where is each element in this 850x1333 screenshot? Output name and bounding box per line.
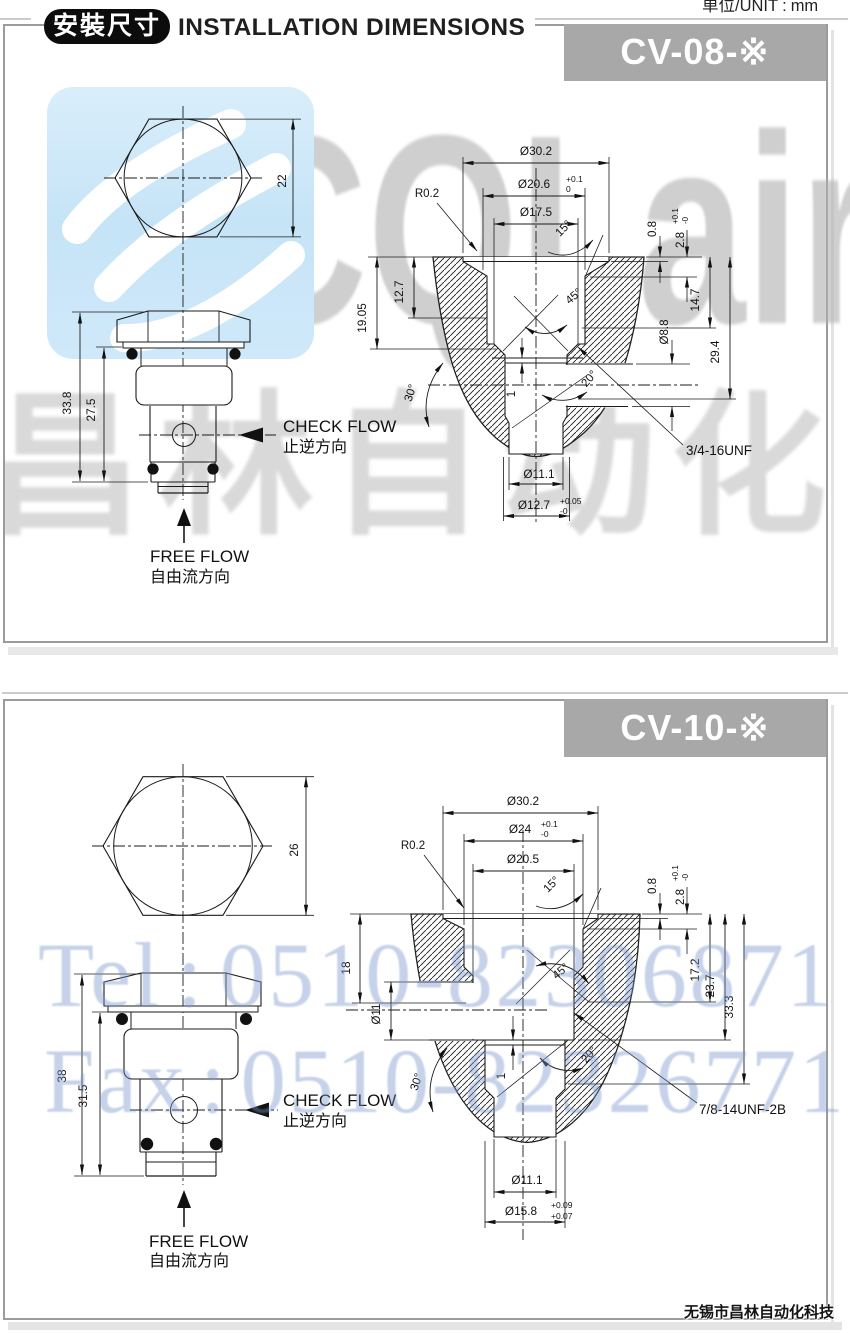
- svg-text:2.8: 2.8: [675, 889, 687, 905]
- svg-text:Ø20.6: Ø20.6: [518, 177, 551, 191]
- svg-text:26: 26: [287, 843, 301, 857]
- svg-text:自由流方向: 自由流方向: [149, 1252, 229, 1270]
- svg-text:29.4: 29.4: [708, 340, 722, 363]
- svg-text:CHECK FLOW: CHECK FLOW: [283, 417, 396, 436]
- svg-text:22: 22: [275, 174, 289, 187]
- svg-text:12.7: 12.7: [392, 281, 406, 304]
- svg-text:27.5: 27.5: [84, 398, 98, 421]
- svg-text:+0.1: +0.1: [671, 865, 680, 881]
- svg-text:0.8: 0.8: [647, 221, 659, 237]
- svg-text:1: 1: [506, 391, 518, 397]
- svg-text:0.8: 0.8: [647, 878, 659, 894]
- svg-text:2.8: 2.8: [675, 232, 687, 248]
- svg-text:+0.05: +0.05: [560, 496, 582, 506]
- svg-text:-0: -0: [681, 873, 690, 881]
- svg-text:-0: -0: [560, 506, 568, 516]
- svg-text:15°: 15°: [541, 874, 562, 895]
- svg-text:19.05: 19.05: [355, 303, 369, 333]
- svg-text:-0: -0: [541, 829, 549, 839]
- svg-text:Ø11.1: Ø11.1: [523, 467, 554, 481]
- svg-text:Ø11.1: Ø11.1: [511, 1173, 542, 1187]
- svg-text:Ø30.2: Ø30.2: [507, 794, 539, 808]
- svg-text:Ø30.2: Ø30.2: [520, 144, 552, 158]
- svg-text:R0.2: R0.2: [401, 840, 425, 852]
- svg-text:+0.1: +0.1: [541, 819, 558, 829]
- svg-text:R0.2: R0.2: [415, 188, 439, 200]
- svg-text:Ø17.5: Ø17.5: [520, 205, 553, 219]
- svg-text:0: 0: [566, 184, 571, 194]
- svg-text:Ø20.5: Ø20.5: [507, 852, 540, 866]
- svg-text:14.7: 14.7: [688, 289, 702, 312]
- svg-text:30°: 30°: [403, 383, 420, 403]
- svg-text:FREE FLOW: FREE FLOW: [150, 547, 249, 566]
- svg-text:+0.1: +0.1: [671, 208, 680, 224]
- svg-text:+0.07: +0.07: [551, 1211, 573, 1221]
- svg-text:-0: -0: [681, 216, 690, 224]
- svg-text:+0.1: +0.1: [566, 174, 583, 184]
- svg-text:+0.09: +0.09: [551, 1200, 573, 1210]
- svg-text:3/4-16UNF: 3/4-16UNF: [686, 443, 752, 458]
- svg-text:止逆方向: 止逆方向: [283, 438, 347, 456]
- svg-text:FREE FLOW: FREE FLOW: [149, 1232, 248, 1251]
- svg-text:自由流方向: 自由流方向: [150, 568, 230, 586]
- svg-text:Ø12.7: Ø12.7: [518, 498, 550, 512]
- svg-text:Ø24: Ø24: [509, 822, 532, 836]
- svg-text:15°: 15°: [553, 218, 574, 239]
- svg-text:Ø15.8: Ø15.8: [505, 1204, 538, 1218]
- svg-text:33.8: 33.8: [60, 391, 74, 414]
- svg-text:Ø8.8: Ø8.8: [659, 320, 671, 345]
